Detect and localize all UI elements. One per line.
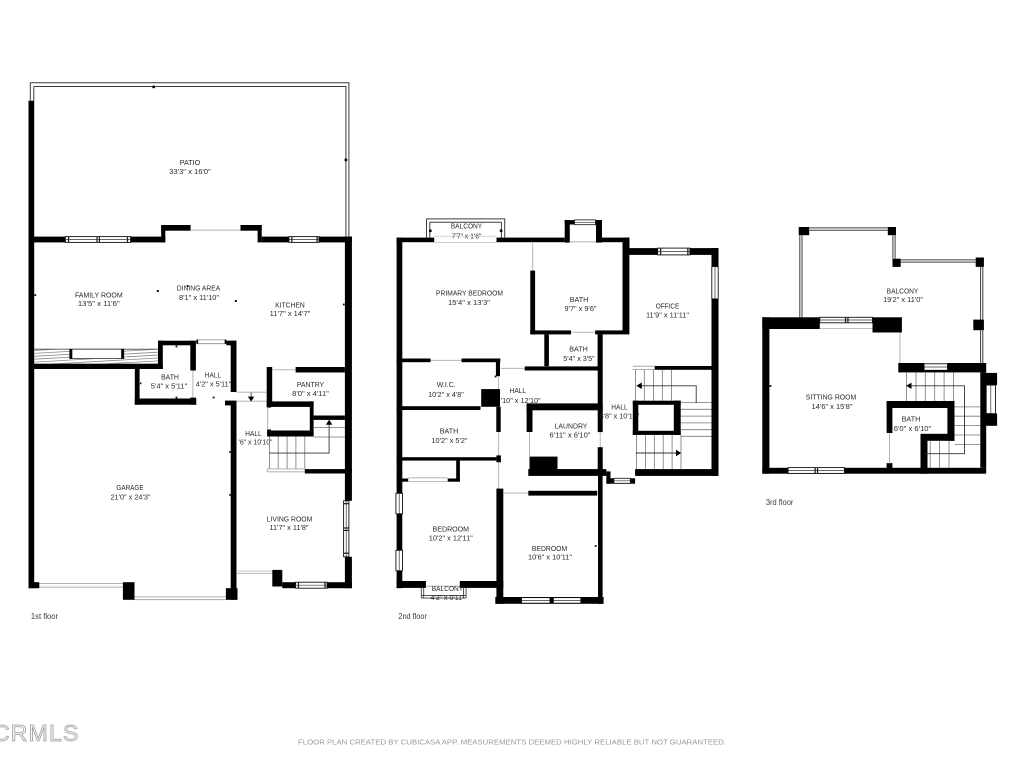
svg-text:BALCONY: BALCONY	[451, 221, 482, 230]
svg-text:11'7" x 11'8": 11'7" x 11'8"	[269, 523, 308, 532]
svg-text:1st floor: 1st floor	[31, 612, 59, 621]
svg-text:14'6" x 15'8": 14'6" x 15'8"	[812, 402, 853, 411]
svg-text:LAUNDRY: LAUNDRY	[555, 421, 588, 430]
svg-text:BEDROOM: BEDROOM	[433, 525, 470, 534]
svg-text:5'4" x 3'5": 5'4" x 3'5"	[563, 354, 595, 363]
svg-text:4'3" x 0'11": 4'3" x 0'11"	[431, 593, 465, 602]
svg-text:BATH: BATH	[902, 415, 921, 424]
svg-text:HALL: HALL	[510, 386, 526, 395]
svg-text:PRIMARY BEDROOM: PRIMARY BEDROOM	[436, 288, 503, 297]
svg-text:3rd floor: 3rd floor	[766, 498, 794, 507]
svg-text:10'2" x 5'2": 10'2" x 5'2"	[432, 436, 468, 445]
svg-text:6'11" x 6'10": 6'11" x 6'10"	[550, 431, 591, 440]
svg-text:HALL: HALL	[245, 429, 261, 438]
svg-text:BATH: BATH	[161, 372, 179, 381]
svg-text:CRMLS: CRMLS	[0, 720, 80, 746]
svg-text:19'2" x 11'0": 19'2" x 11'0"	[883, 295, 923, 304]
svg-text:BALCONY: BALCONY	[432, 584, 463, 593]
svg-text:6'0" x 6'10": 6'0" x 6'10"	[894, 424, 932, 433]
svg-text:PANTRY: PANTRY	[297, 380, 324, 389]
svg-text:10'2" x 4'8": 10'2" x 4'8"	[428, 390, 464, 399]
svg-text:2nd floor: 2nd floor	[398, 612, 427, 621]
svg-text:HALL: HALL	[205, 370, 221, 379]
svg-text:8'1" x 11'10": 8'1" x 11'10"	[179, 293, 219, 302]
svg-text:DINING AREA: DINING AREA	[177, 284, 220, 293]
svg-text:8'0" x 4'11": 8'0" x 4'11"	[292, 389, 329, 398]
svg-text:11'9" x 11'11": 11'9" x 11'11"	[646, 311, 689, 320]
svg-text:SITTING ROOM: SITTING ROOM	[806, 392, 856, 401]
svg-text:7'7" x 1'6": 7'7" x 1'6"	[452, 231, 482, 240]
svg-text:13'5" x 11'6": 13'5" x 11'6"	[78, 299, 120, 308]
svg-text:BATH: BATH	[440, 427, 459, 436]
svg-text:LIVING ROOM: LIVING ROOM	[267, 514, 313, 523]
svg-text:HALL: HALL	[611, 402, 627, 411]
svg-text:PATIO: PATIO	[180, 158, 201, 167]
svg-text:10'2" x 12'11": 10'2" x 12'11"	[429, 534, 473, 543]
svg-text:GARAGE: GARAGE	[116, 483, 143, 492]
svg-text:4'2" x 5'11": 4'2" x 5'11"	[196, 380, 232, 389]
svg-text:21'0" x 24'3": 21'0" x 24'3"	[110, 492, 150, 501]
svg-text:BATH: BATH	[569, 345, 588, 354]
svg-text:33'3" x 16'0": 33'3" x 16'0"	[169, 167, 211, 176]
svg-text:'6" x 10'10": '6" x 10'10"	[239, 438, 273, 447]
svg-text:OFFICE: OFFICE	[656, 301, 680, 310]
svg-text:10'6" x 10'11": 10'6" x 10'11"	[528, 552, 572, 561]
svg-text:11'7" x 14'7": 11'7" x 14'7"	[270, 309, 311, 318]
svg-text:W.I.C.: W.I.C.	[437, 380, 456, 389]
svg-text:15'4" x 13'3": 15'4" x 13'3"	[448, 298, 490, 307]
svg-text:9'7" x 9'6": 9'7" x 9'6"	[565, 304, 597, 313]
svg-text:FLOOR PLAN CREATED BY CUBICASA: FLOOR PLAN CREATED BY CUBICASA APP. MEAS…	[298, 738, 726, 747]
svg-text:BATH: BATH	[570, 295, 589, 304]
svg-text:5'4" x 5'11": 5'4" x 5'11"	[151, 382, 188, 391]
